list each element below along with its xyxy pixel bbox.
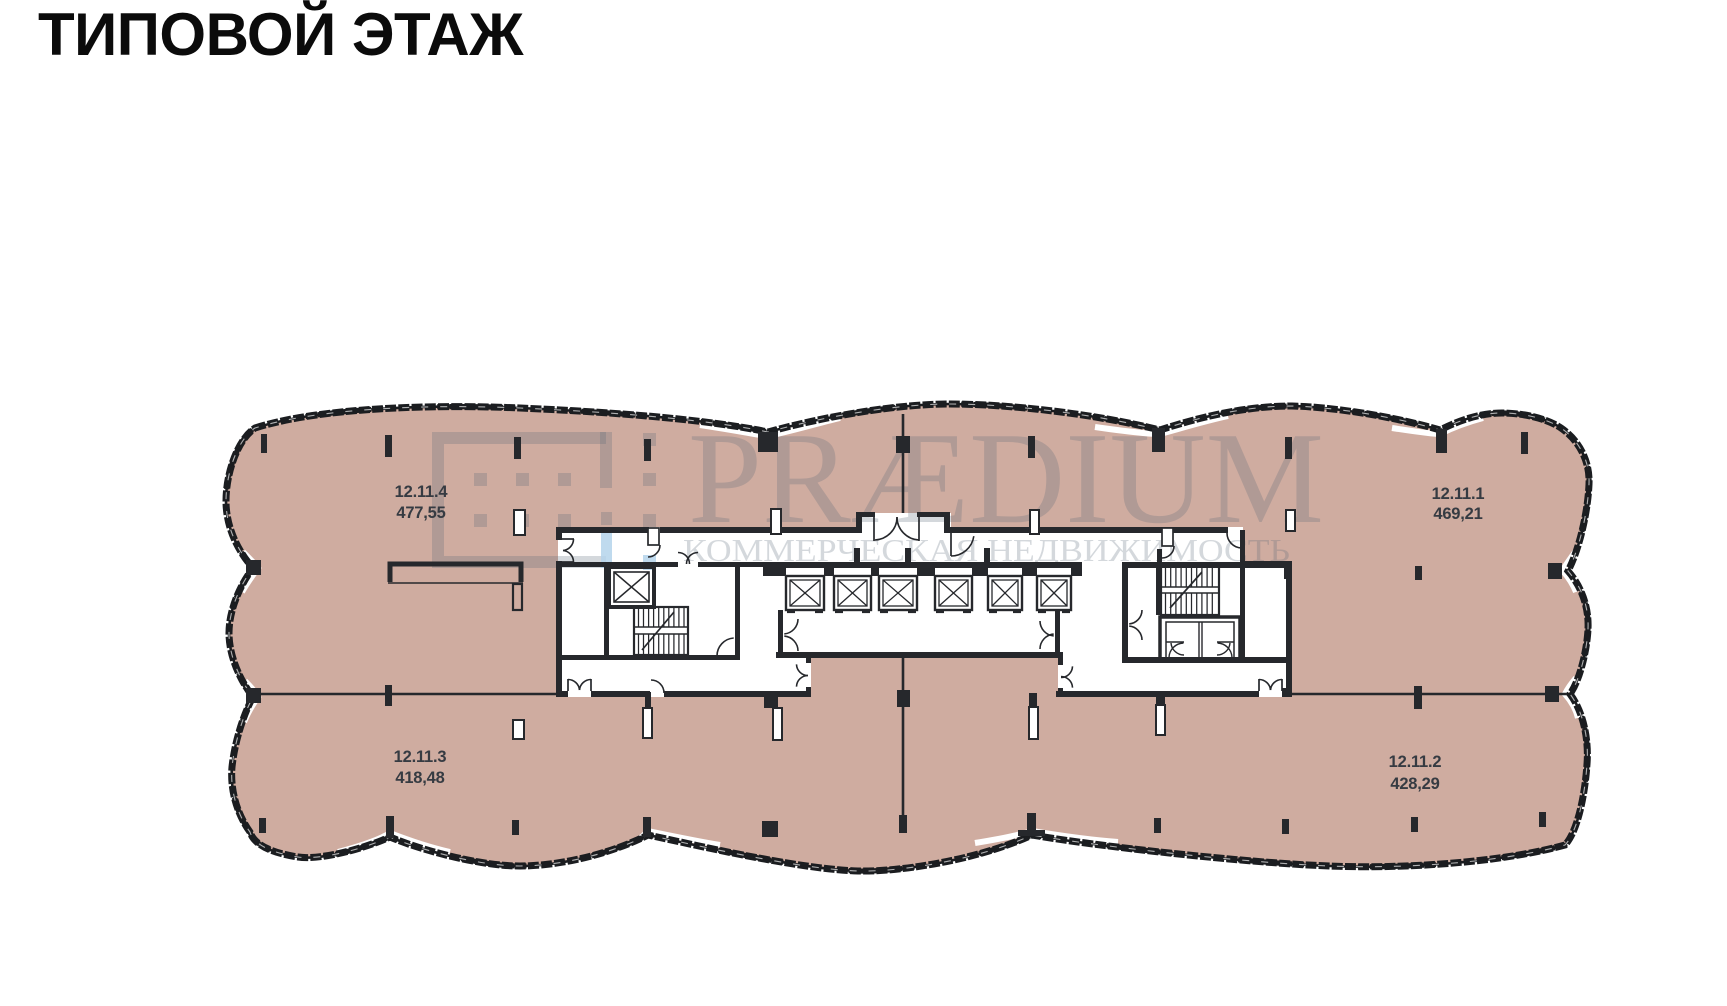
- svg-text:12.11.2: 12.11.2: [1389, 753, 1442, 771]
- svg-text:469,21: 469,21: [1433, 505, 1482, 523]
- svg-text:12.11.3: 12.11.3: [394, 748, 447, 766]
- svg-text:12.11.1: 12.11.1: [1432, 485, 1485, 503]
- svg-text:ТИПОВОЙ ЭТАЖ: ТИПОВОЙ ЭТАЖ: [38, 1, 524, 68]
- svg-text:428,29: 428,29: [1390, 775, 1439, 793]
- svg-text:477,55: 477,55: [396, 504, 445, 522]
- svg-text:418,48: 418,48: [395, 769, 444, 787]
- svg-text:12.11.4: 12.11.4: [395, 483, 449, 501]
